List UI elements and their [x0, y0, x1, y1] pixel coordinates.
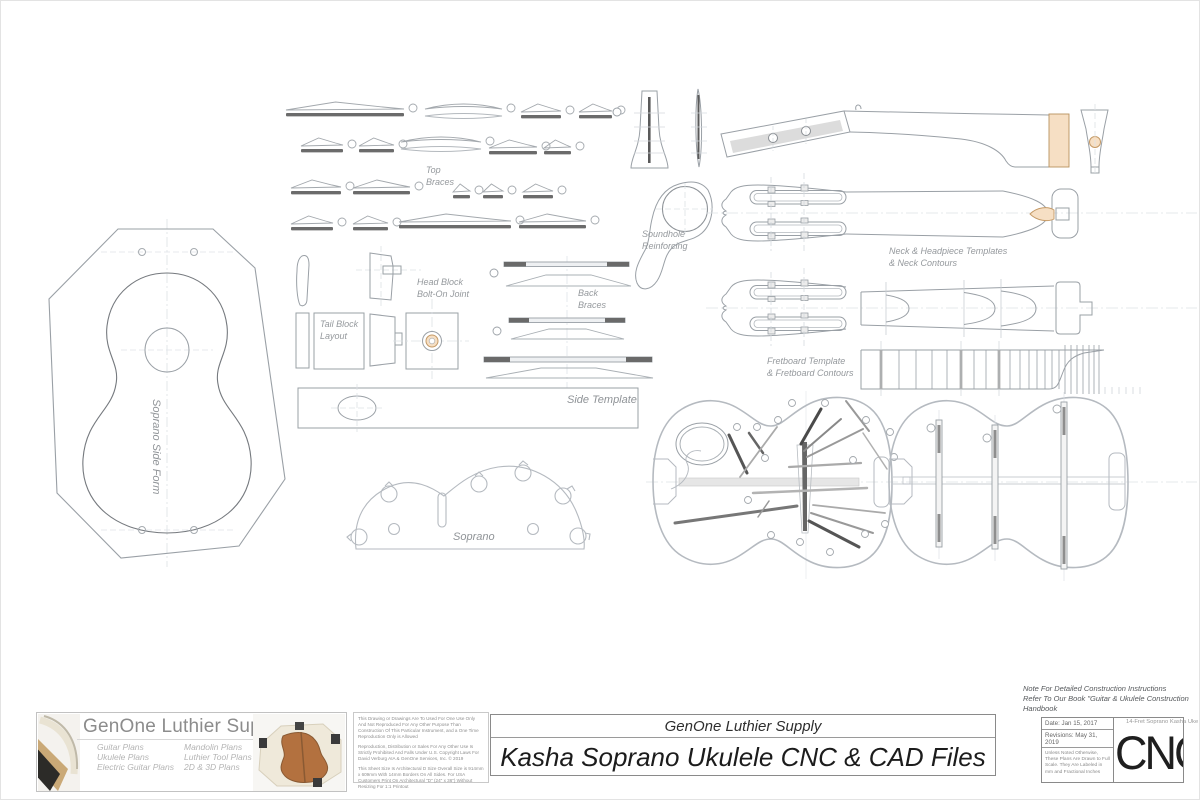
- construction-note: Note For Detailed Construction Instructi…: [1023, 684, 1189, 714]
- scale-note: Unless Noted Otherwise, These Plans Are …: [1042, 748, 1113, 779]
- date-value: Date: Jan 15, 2017: [1042, 718, 1113, 730]
- company-name: GenOne Luthier Supply: [491, 715, 995, 738]
- ukulele-mold-photo: [253, 714, 345, 791]
- soprano-side-form-drawing: [49, 219, 285, 567]
- block-layout-drawing: [296, 246, 469, 379]
- revisions-value: Revisions: May 31, 2019: [1042, 730, 1113, 748]
- plans-list-2: Mandolin Plans Luthier Tool Plans 2D & 3…: [184, 742, 252, 772]
- cnc-logo: CNC: [1115, 726, 1183, 781]
- side-template-drawing: [298, 384, 638, 432]
- label-soundhole-reinforcing: SoundholeReinforcing: [642, 229, 688, 252]
- neck-front-template-drawing: [706, 173, 1197, 253]
- top-braces-drawing: [286, 102, 625, 230]
- legal-paragraph: This Drawing or Drawings Are To Used For…: [358, 716, 484, 740]
- legal-paragraph: This Sheet Size Is Architectural D Size …: [358, 766, 484, 790]
- plans-list-1: Guitar Plans Ukulele Plans Electric Guit…: [97, 742, 174, 772]
- date-block: Date: Jan 15, 2017 Revisions: May 31, 20…: [1041, 717, 1114, 783]
- back-braces-drawing: [484, 256, 653, 401]
- sheet-title: Kasha Soprano Ukulele CNC & CAD Files: [491, 738, 995, 773]
- label-side-template: Side Template: [567, 393, 637, 407]
- top-plate-bracing-drawing: [646, 391, 1197, 579]
- cnc-logo-block: CNC: [1114, 717, 1184, 783]
- label-back-braces: BackBraces: [578, 288, 606, 311]
- guitar-section-photo: [38, 714, 80, 791]
- fretboard-template-drawing: [861, 341, 1104, 396]
- drawing-sheet: TopBraces Head BlockBolt-On Joint Tail B…: [0, 0, 1200, 800]
- back-plate-bracing-drawing: [889, 387, 1140, 581]
- headpiece-template-drawing: [613, 89, 707, 168]
- title-text-block: GenOne Luthier Supply Kasha Soprano Ukul…: [490, 714, 996, 776]
- label-soprano-side-form: Soprano Side Form: [149, 399, 163, 494]
- label-top-braces: TopBraces: [426, 165, 454, 188]
- label-neck-templates: Neck & Headpiece Templates& Neck Contour…: [889, 246, 1007, 269]
- label-soprano: Soprano: [453, 530, 495, 544]
- label-tail-block: Tail BlockLayout: [320, 319, 358, 342]
- logo-block: GenOne Luthier Supplies Guitar Plans Uku…: [36, 712, 347, 792]
- label-head-block: Head BlockBolt-On Joint: [417, 277, 469, 300]
- neck-contours-drawing: [706, 268, 1197, 348]
- label-fretboard-template: Fretboard Template& Fretboard Contours: [767, 356, 854, 379]
- neck-side-profile-drawing: [721, 104, 1108, 173]
- legal-text-block: This Drawing or Drawings Are To Used For…: [353, 712, 489, 783]
- sheet-name: 14-Fret Soprano Kasha Uke C: [1126, 719, 1200, 725]
- legal-paragraph: Reproduction, Distribution or Sales For …: [358, 744, 484, 762]
